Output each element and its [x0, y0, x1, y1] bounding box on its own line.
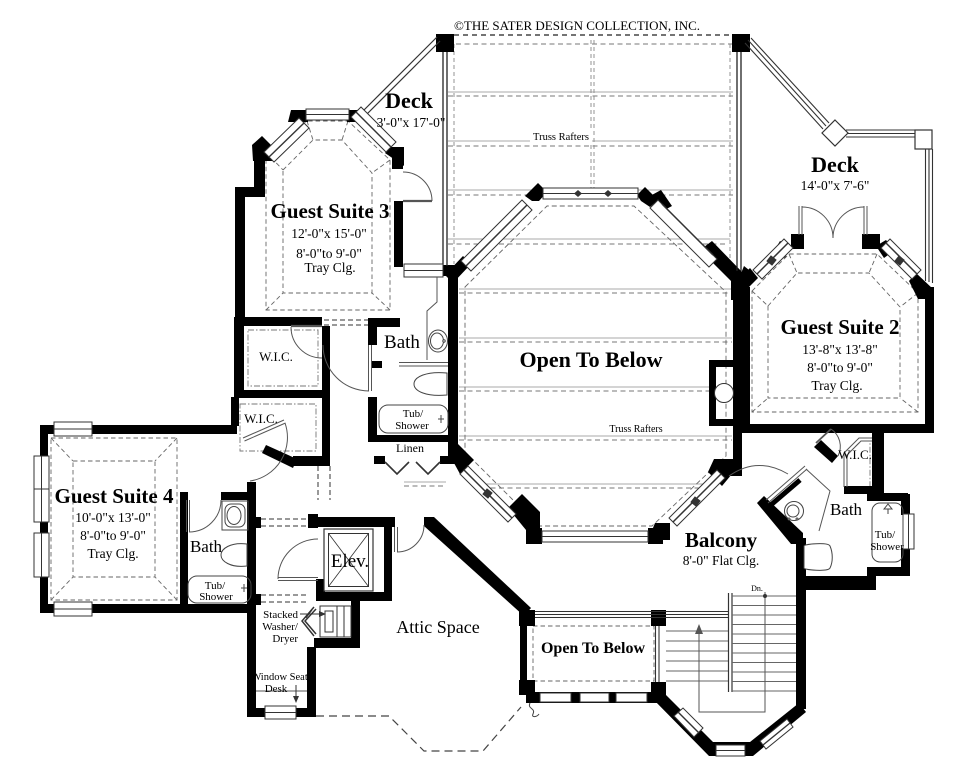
svg-text:10'-0"x 13'-0": 10'-0"x 13'-0": [75, 510, 151, 525]
svg-text:12'-0"x 15'-0": 12'-0"x 15'-0": [291, 226, 367, 241]
svg-text:8'-0" Flat Clg.: 8'-0" Flat Clg.: [683, 553, 760, 568]
svg-text:Elev.: Elev.: [331, 551, 369, 572]
svg-text:Attic Space: Attic Space: [396, 617, 479, 637]
svg-text:Window Seat/: Window Seat/: [251, 672, 310, 683]
svg-text:Bath: Bath: [384, 332, 420, 353]
svg-text:3'-0"x 17'-0": 3'-0"x 17'-0": [377, 115, 446, 130]
svg-text:8'-0"to 9'-0": 8'-0"to 9'-0": [296, 246, 362, 261]
svg-text:©THE SATER DESIGN COLLECTION,: ©THE SATER DESIGN COLLECTION, INC.: [454, 18, 700, 33]
svg-text:Open To Below: Open To Below: [519, 347, 662, 372]
svg-text:Linen: Linen: [396, 441, 424, 455]
svg-text:Deck: Deck: [811, 152, 859, 177]
svg-text:8'-0"to 9'-0": 8'-0"to 9'-0": [807, 360, 873, 375]
svg-text:Bath: Bath: [190, 537, 223, 556]
svg-text:Deck: Deck: [385, 88, 433, 113]
svg-text:Shower: Shower: [870, 541, 904, 553]
svg-text:Tub/: Tub/: [403, 408, 424, 420]
svg-text:Tray Clg.: Tray Clg.: [811, 378, 862, 393]
svg-text:Shower: Shower: [395, 420, 429, 432]
svg-text:Desk: Desk: [265, 683, 288, 695]
svg-text:13'-8"x 13'-8": 13'-8"x 13'-8": [802, 342, 878, 357]
svg-text:Open To Below: Open To Below: [541, 640, 645, 657]
svg-text:W.I.C.: W.I.C.: [259, 349, 293, 364]
svg-text:W.I.C.: W.I.C.: [838, 447, 872, 462]
svg-text:Shower: Shower: [199, 591, 233, 603]
svg-text:14'-0"x 7'-6": 14'-0"x 7'-6": [801, 178, 870, 193]
svg-text:Truss Rafters: Truss Rafters: [533, 132, 589, 143]
svg-text:8'-0"to 9'-0": 8'-0"to 9'-0": [80, 528, 146, 543]
svg-text:Tub/: Tub/: [875, 529, 896, 541]
svg-text:Truss Rafters: Truss Rafters: [609, 424, 662, 435]
svg-text:Guest Suite 4: Guest Suite 4: [54, 484, 174, 508]
svg-text:Washer/: Washer/: [262, 621, 299, 633]
svg-text:Guest Suite 3: Guest Suite 3: [270, 199, 389, 223]
svg-text:Tray Clg.: Tray Clg.: [304, 260, 355, 275]
svg-text:Bath: Bath: [830, 500, 863, 519]
svg-text:Stacked: Stacked: [263, 609, 298, 621]
svg-text:Guest Suite 2: Guest Suite 2: [780, 315, 899, 339]
svg-text:W.I.C.: W.I.C.: [244, 411, 278, 426]
svg-text:Tray Clg.: Tray Clg.: [87, 546, 138, 561]
svg-text:Dryer: Dryer: [272, 633, 298, 645]
svg-text:Balcony: Balcony: [685, 528, 758, 552]
svg-text:Dn.: Dn.: [751, 584, 763, 593]
